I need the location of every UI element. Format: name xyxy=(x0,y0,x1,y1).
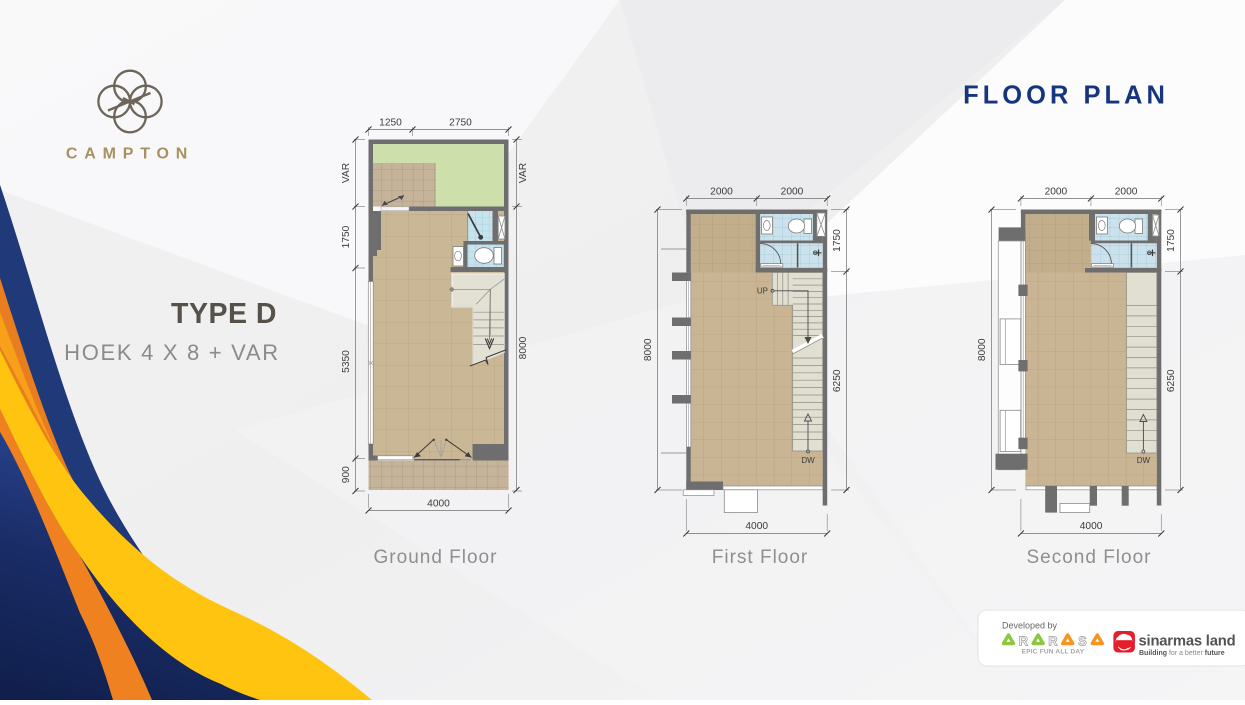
svg-text:Ground Floor: Ground Floor xyxy=(374,547,498,568)
svg-text:1750: 1750 xyxy=(341,225,352,248)
svg-text:1750: 1750 xyxy=(832,229,843,252)
svg-text:4000: 4000 xyxy=(745,521,768,532)
svg-text:sinarmas land: sinarmas land xyxy=(1139,634,1236,650)
svg-text:5350: 5350 xyxy=(341,350,352,373)
svg-text:CAMPTON: CAMPTON xyxy=(66,146,194,163)
svg-text:8000: 8000 xyxy=(977,338,988,361)
svg-text:R: R xyxy=(1019,634,1029,649)
svg-text:6250: 6250 xyxy=(832,369,843,392)
svg-text:2000: 2000 xyxy=(710,187,733,198)
svg-text:FLOOR PLAN: FLOOR PLAN xyxy=(963,82,1169,110)
svg-text:2750: 2750 xyxy=(449,118,472,129)
svg-text:DW: DW xyxy=(1137,456,1151,465)
svg-text:8000: 8000 xyxy=(643,338,654,361)
svg-text:2000: 2000 xyxy=(781,187,804,198)
svg-text:Developed by: Developed by xyxy=(1002,621,1058,631)
svg-text:8000: 8000 xyxy=(518,336,529,359)
svg-text:2000: 2000 xyxy=(1045,187,1068,198)
svg-text:4000: 4000 xyxy=(427,499,450,510)
svg-text:1250: 1250 xyxy=(379,118,402,129)
svg-text:UP: UP xyxy=(757,287,768,296)
svg-text:2000: 2000 xyxy=(1115,187,1138,198)
svg-text:HOEK 4 X 8 + VAR: HOEK 4 X 8 + VAR xyxy=(64,340,280,365)
svg-text:EPIC FUN ALL DAY: EPIC FUN ALL DAY xyxy=(1022,649,1085,656)
svg-text:1750: 1750 xyxy=(1166,229,1177,252)
svg-text:S: S xyxy=(1078,634,1087,649)
svg-text:VAR: VAR xyxy=(341,163,352,183)
svg-text:Building for a better future: Building for a better future xyxy=(1139,650,1225,657)
svg-text:DW: DW xyxy=(801,456,815,465)
svg-text:6250: 6250 xyxy=(1166,369,1177,392)
svg-text:900: 900 xyxy=(341,466,352,483)
svg-text:VAR: VAR xyxy=(518,163,529,183)
svg-text:First Floor: First Floor xyxy=(712,547,809,568)
svg-text:TYPE D: TYPE D xyxy=(171,298,277,330)
svg-text:R: R xyxy=(1048,634,1058,649)
svg-text:4000: 4000 xyxy=(1080,521,1103,532)
svg-text:Second Floor: Second Floor xyxy=(1026,547,1151,568)
